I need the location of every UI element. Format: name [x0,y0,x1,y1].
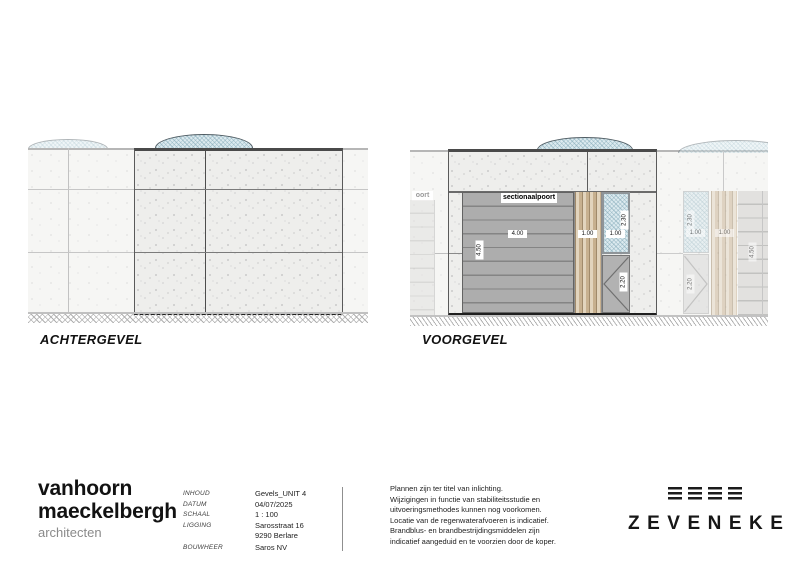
panel-joint-line [435,253,448,254]
sectional-gate-faded [410,200,435,315]
panel-joint-line [587,152,588,191]
field-row-ligging: LIGGING Sarosstraat 16 [183,521,353,531]
panel-joint-line [762,191,763,315]
panel-joint-line [205,151,206,312]
voorgevel-drawing: oort sectionaalpoort 4.00 4.50 1.00 2.30… [410,130,768,326]
firm-subtitle: architecten [38,525,177,541]
dim-window-width: 1.00 [606,230,625,238]
field-value: Saros NV [255,543,287,552]
field-label: INHOUD [183,489,210,498]
logo-bars-icon [668,487,742,500]
ground-hatch [28,314,368,323]
disclaimer-line: Wijzigingen in functie van stabiliteitss… [390,495,620,506]
panel-joint-line [723,152,724,191]
dim-door-height-faded: 2.20 [687,275,695,294]
field-label: SCHAAL [183,510,210,519]
panel-joint-line [135,189,342,190]
disclaimer-line: uitvoeringsmethodes kunnen nog voorkomen… [390,505,620,516]
panel-joint-line [135,252,342,253]
elevation-title-achtergevel: ACHTERGEVEL [40,332,143,347]
elevation-title-voorgevel: VOORGEVEL [422,332,508,347]
wood-slat-cladding [574,192,602,313]
triple-bar-icon [668,487,682,500]
disclaimer-text: Plannen zijn ter titel van inlichting. W… [390,484,620,548]
project-fields: INHOUD Gevels_UNIT 4 DATUM 04/07/2025 SC… [183,486,353,558]
gate-label: sectionaalpoort [501,193,557,203]
dim-gate-height-faded: 4.50 [749,243,757,262]
skylight-dome [155,134,253,148]
field-value: 04/07/2025 [255,500,293,509]
dim-window-height: 2.30 [621,211,629,230]
firm-logo-block: vanhoorn maeckelbergh architecten [38,477,177,541]
ground-hatch [410,317,768,326]
dim-gate-height: 4.50 [476,241,484,260]
firm-name-line1: vanhoorn [38,477,177,500]
panel-joint-line [657,253,683,254]
triple-bar-icon [728,487,742,500]
field-label: LIGGING [183,521,212,530]
triple-bar-icon [688,487,702,500]
disclaimer-line: Plannen zijn ter titel van inlichting. [390,484,620,495]
dim-gate-width: 4.00 [508,230,527,238]
unit-wall-highlight [134,148,343,315]
dim-slats-width: 1.00 [578,230,597,238]
field-label: BOUWHEER [183,543,223,552]
achtergevel-drawing [28,130,368,323]
brand-name: ZEVENEKE [628,513,790,535]
field-row-inhoud: INHOUD Gevels_UNIT 4 [183,489,353,499]
titleblock-divider [342,487,343,551]
field-row-ligging2: 9290 Berlare [183,531,353,541]
field-row-schaal: SCHAAL 1 : 100 [183,510,353,520]
disclaimer-line: Brandblus- en brandbestrijdingsmiddelen … [390,526,620,537]
dim-door-height: 2.20 [620,273,628,292]
disclaimer-line: Locatie van de regenwaterafvoeren is ind… [390,516,620,527]
field-row-datum: DATUM 04/07/2025 [183,500,353,510]
firm-name-line2: maeckelbergh [38,500,177,523]
field-label: DATUM [183,500,207,509]
panel-joint-line [68,148,69,312]
field-value: Sarosstraat 16 [255,521,304,530]
panel-joint-line [449,253,463,254]
developer-logo-block: ZEVENEKE [620,482,795,542]
dim-window-width-faded: 1.00 [686,229,705,237]
field-value: Gevels_UNIT 4 [255,489,306,498]
wood-slat-cladding-faded [711,191,737,315]
field-value: 1 : 100 [255,510,278,519]
field-value: 9290 Berlare [255,531,298,540]
drawing-sheet: ACHTERGEVEL oort sectionaalpoort 4.00 4.… [0,0,800,570]
field-row-bouwheer: BOUWHEER Saros NV [183,543,353,553]
dim-slats-width-faded: 1.00 [715,229,734,237]
unit-wall-highlight: sectionaalpoort 4.00 4.50 1.00 2.30 1.00… [448,149,657,316]
triple-bar-icon [708,487,722,500]
dim-window-height-faded: 2.30 [687,211,695,230]
disclaimer-line: indicatief aangeduid en te voorzien door… [390,537,620,548]
